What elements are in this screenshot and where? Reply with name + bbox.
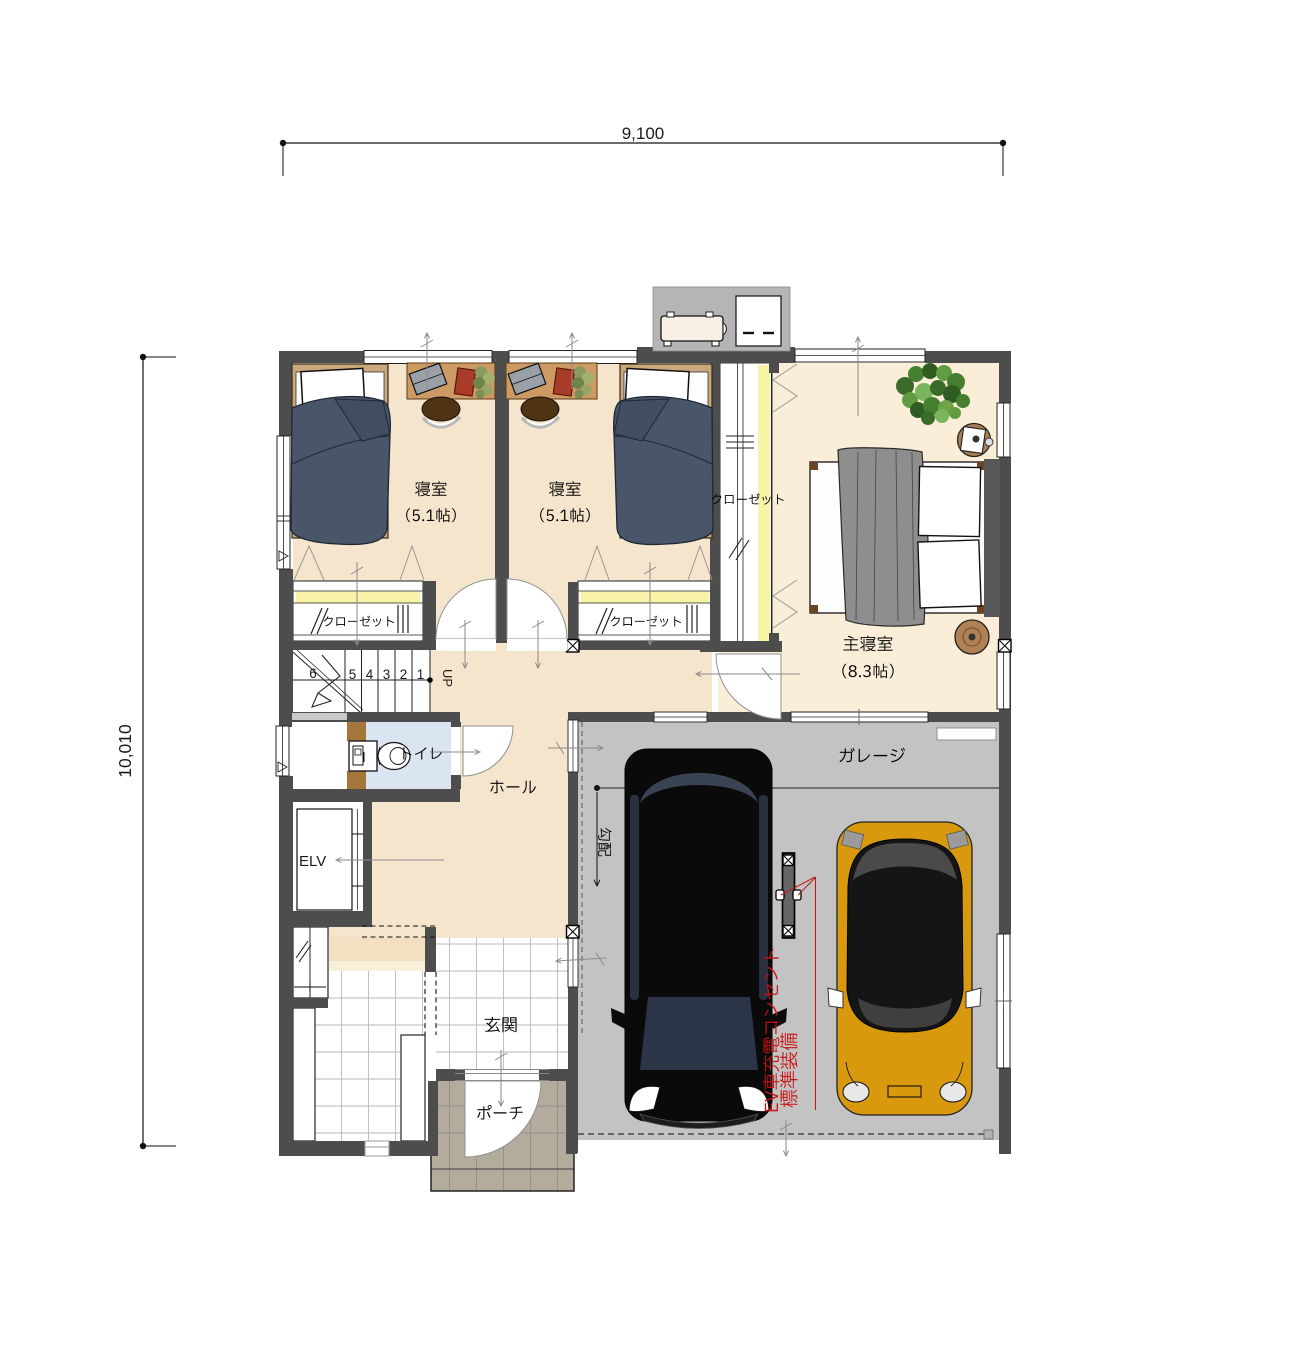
svg-text:1: 1 (417, 667, 425, 682)
svg-text:ELV: ELV (299, 853, 326, 870)
svg-text:2: 2 (400, 667, 408, 682)
svg-text:6: 6 (309, 666, 317, 681)
svg-text:UP: UP (440, 669, 455, 687)
svg-text:3: 3 (383, 667, 391, 682)
svg-text:9,100: 9,100 (622, 124, 665, 143)
svg-text:4: 4 (366, 667, 374, 682)
svg-text:10,010: 10,010 (115, 724, 135, 778)
svg-text:5: 5 (349, 667, 357, 682)
